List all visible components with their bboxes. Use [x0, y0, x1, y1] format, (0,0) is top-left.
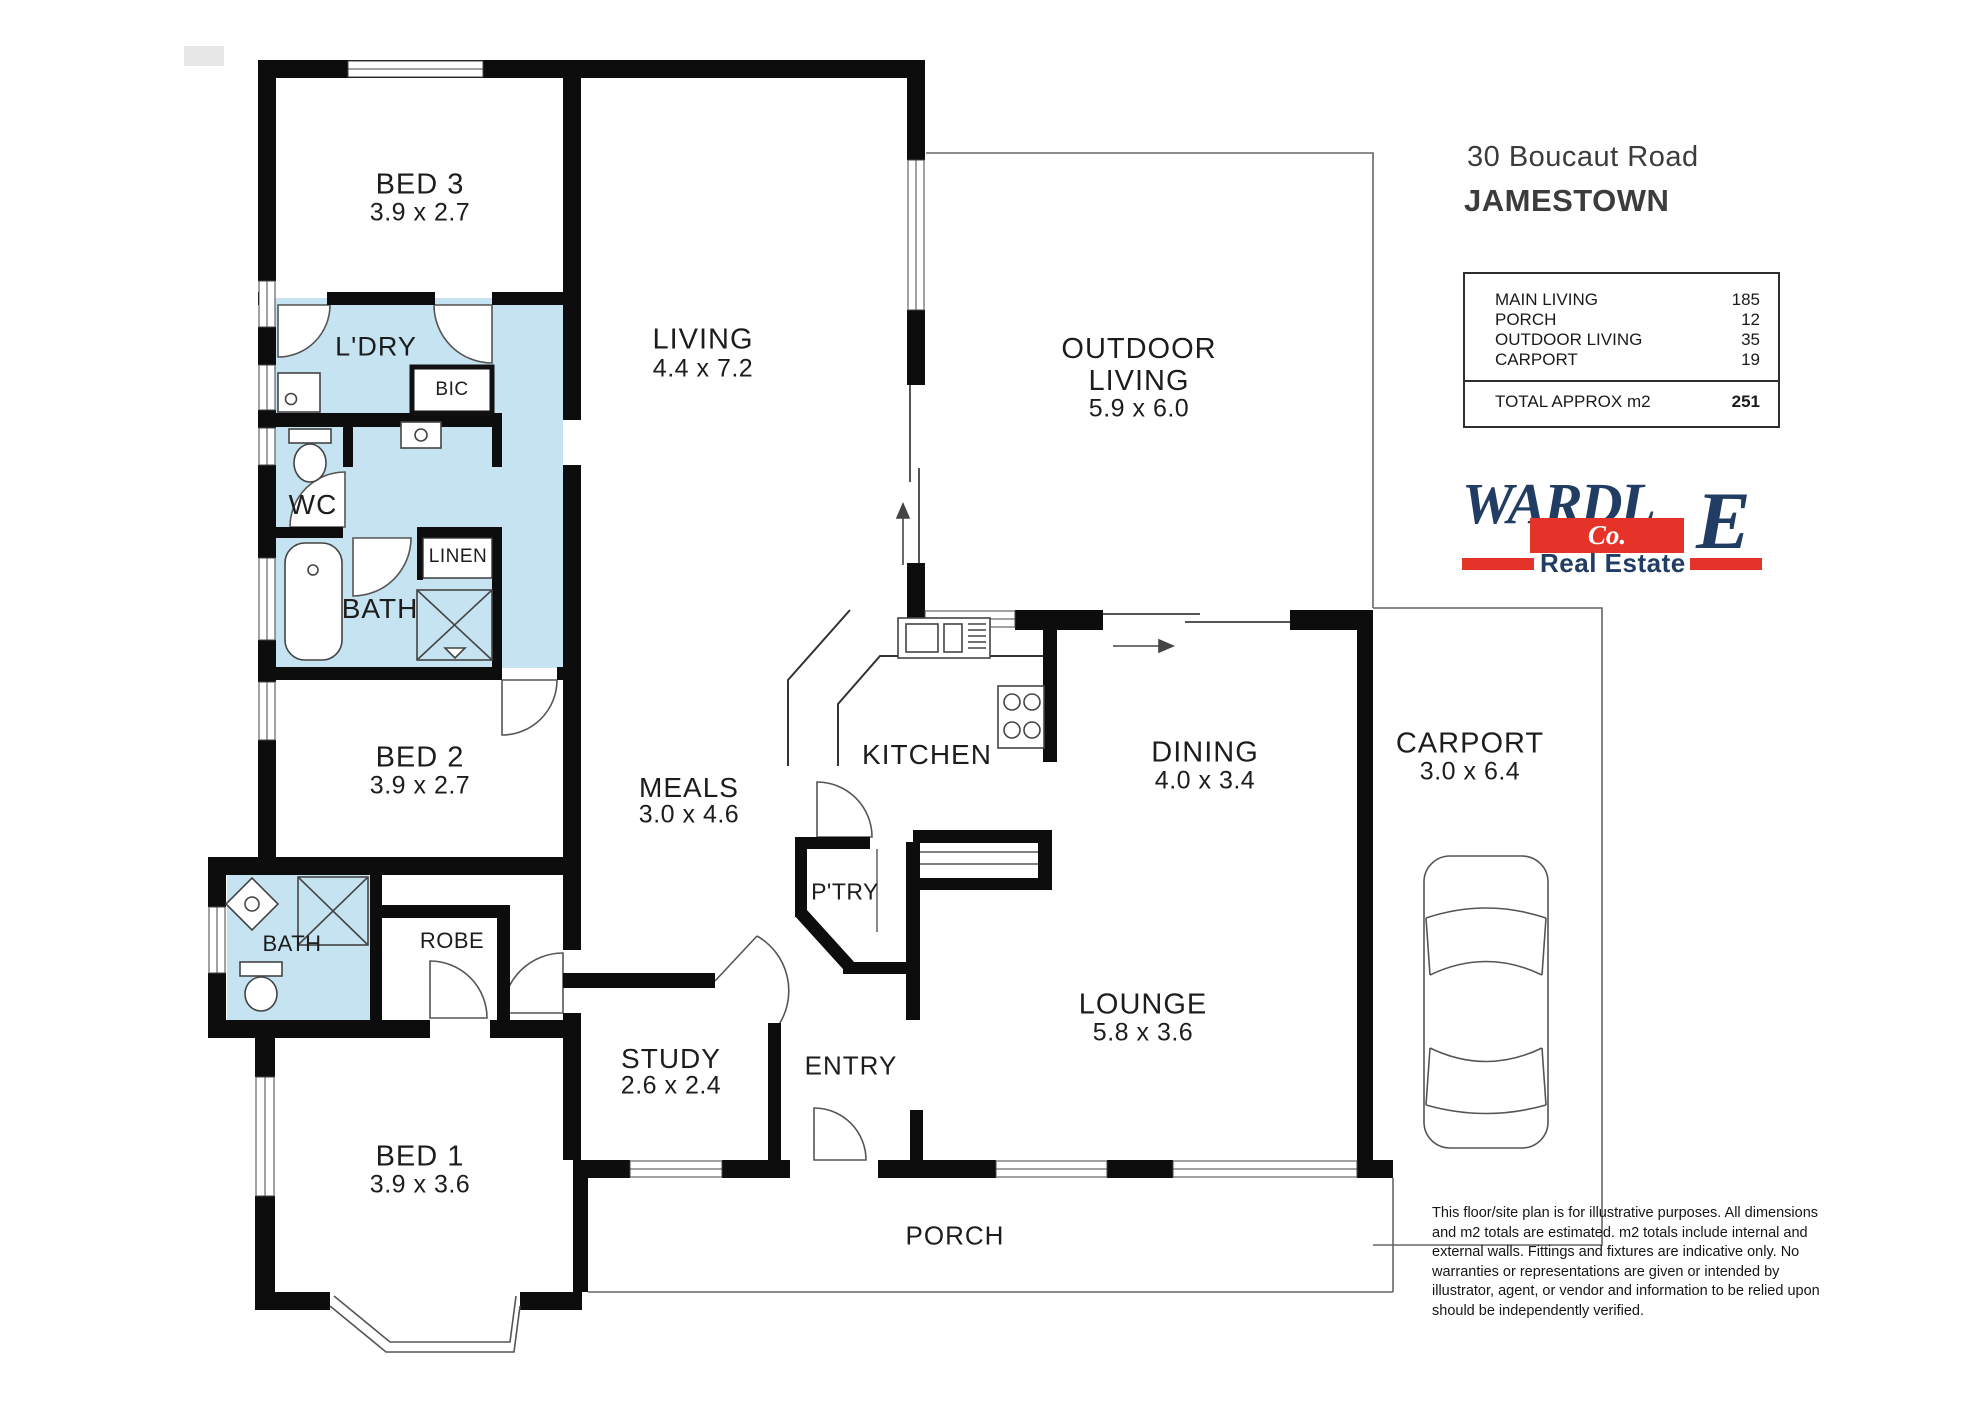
pantry-chamfer-wall: [800, 912, 849, 966]
room-dims-bed3: 3.9 x 2.7: [370, 199, 470, 228]
room-label-linen: LINEN: [429, 546, 487, 568]
study-door: [715, 936, 789, 1026]
wardle-real-estate-logo: WARDL E Co. Real Estate: [1462, 476, 1764, 576]
room-label-bed3: BED 3: [376, 169, 465, 202]
cabinet-lines: [877, 849, 1038, 932]
area-value: 185: [1732, 290, 1760, 310]
room-label-ldry: L'DRY: [335, 332, 417, 363]
logo-tagline: Real Estate: [1540, 548, 1686, 579]
table-row: MAIN LIVING 185: [1495, 290, 1760, 310]
room-dims-meals: 3.0 x 4.6: [639, 801, 739, 830]
room-dims-study: 2.6 x 2.4: [621, 1072, 721, 1101]
area-value: 12: [1741, 310, 1760, 330]
room-dims-outdoor-living: 5.9 x 6.0: [1089, 395, 1189, 424]
room-label-wc: WC: [289, 489, 338, 521]
room-label-kitchen: KITCHEN: [862, 739, 992, 771]
area-value: 19: [1741, 350, 1760, 370]
room-label-robe: ROBE: [420, 928, 484, 954]
room-dims-carport: 3.0 x 6.4: [1420, 758, 1520, 787]
car-icon: [1424, 856, 1548, 1148]
area-table-rows: MAIN LIVING 185 PORCH 12 OUTDOOR LIVING …: [1465, 274, 1778, 380]
room-label-dining: DINING: [1151, 737, 1259, 770]
room-label-living: LIVING: [652, 324, 753, 357]
room-label-ensuite-bath: BATH: [262, 931, 321, 957]
room-label-porch: PORCH: [906, 1221, 1005, 1252]
area-label: OUTDOOR LIVING: [1495, 330, 1642, 350]
room-dims-dining: 4.0 x 3.4: [1155, 767, 1255, 796]
area-label: PORCH: [1495, 310, 1556, 330]
room-label-bed2: BED 2: [376, 742, 465, 775]
room-dims-bed2: 3.9 x 2.7: [370, 772, 470, 801]
bay-window: [330, 1296, 520, 1352]
room-label-pantry: P'TRY: [811, 879, 879, 906]
room-label-carport: CARPORT: [1396, 728, 1544, 761]
floor-plan-page: BED 3 3.9 x 2.7 L'DRY BIC WC LINEN BATH …: [0, 0, 1984, 1403]
cooktop-icon: [998, 686, 1044, 748]
table-total-row: TOTAL APPROX m2 251: [1465, 380, 1778, 426]
room-label-bed1: BED 1: [376, 1141, 465, 1174]
room-dims-living: 4.4 x 7.2: [653, 355, 753, 384]
logo-letter-e: E: [1696, 474, 1751, 568]
room-label-study: STUDY: [621, 1043, 721, 1075]
area-value: 35: [1741, 330, 1760, 350]
property-address: 30 Boucaut Road: [1467, 141, 1699, 174]
room-dims-bed1: 3.9 x 3.6: [370, 1171, 470, 1200]
room-label-outdoor-living: OUTDOOR LIVING: [1029, 334, 1249, 398]
logo-red-bar-right: [1690, 558, 1762, 570]
table-row: CARPORT 19: [1495, 350, 1760, 370]
shower-icon: [417, 590, 492, 660]
kitchen-sink-icon: [898, 618, 990, 658]
area-label: CARPORT: [1495, 350, 1578, 370]
table-row: OUTDOOR LIVING 35: [1495, 330, 1760, 350]
room-label-meals: MEALS: [639, 772, 739, 804]
room-label-lounge: LOUNGE: [1079, 989, 1207, 1022]
total-value: 251: [1732, 392, 1760, 412]
logo-red-bar-left: [1462, 558, 1534, 570]
logo-co-text: Co.: [1588, 520, 1626, 551]
floor-plan-drawing: [0, 0, 1984, 1403]
bathtub-icon: [285, 543, 342, 660]
area-summary-table: MAIN LIVING 185 PORCH 12 OUTDOOR LIVING …: [1463, 272, 1780, 428]
total-label: TOTAL APPROX m2: [1495, 392, 1651, 412]
area-label: MAIN LIVING: [1495, 290, 1598, 310]
room-dims-lounge: 5.8 x 3.6: [1093, 1019, 1193, 1048]
table-row: PORCH 12: [1495, 310, 1760, 330]
disclaimer-text: This floor/site plan is for illustrative…: [1432, 1204, 1830, 1321]
property-suburb: JAMESTOWN: [1464, 183, 1669, 219]
vanity-basin-icon: [401, 422, 441, 448]
laundry-trough-icon: [278, 373, 320, 412]
walls: [208, 60, 1393, 1310]
room-label-entry: ENTRY: [805, 1051, 898, 1082]
room-label-bath: BATH: [342, 593, 419, 625]
room-label-bic: BIC: [435, 379, 468, 401]
